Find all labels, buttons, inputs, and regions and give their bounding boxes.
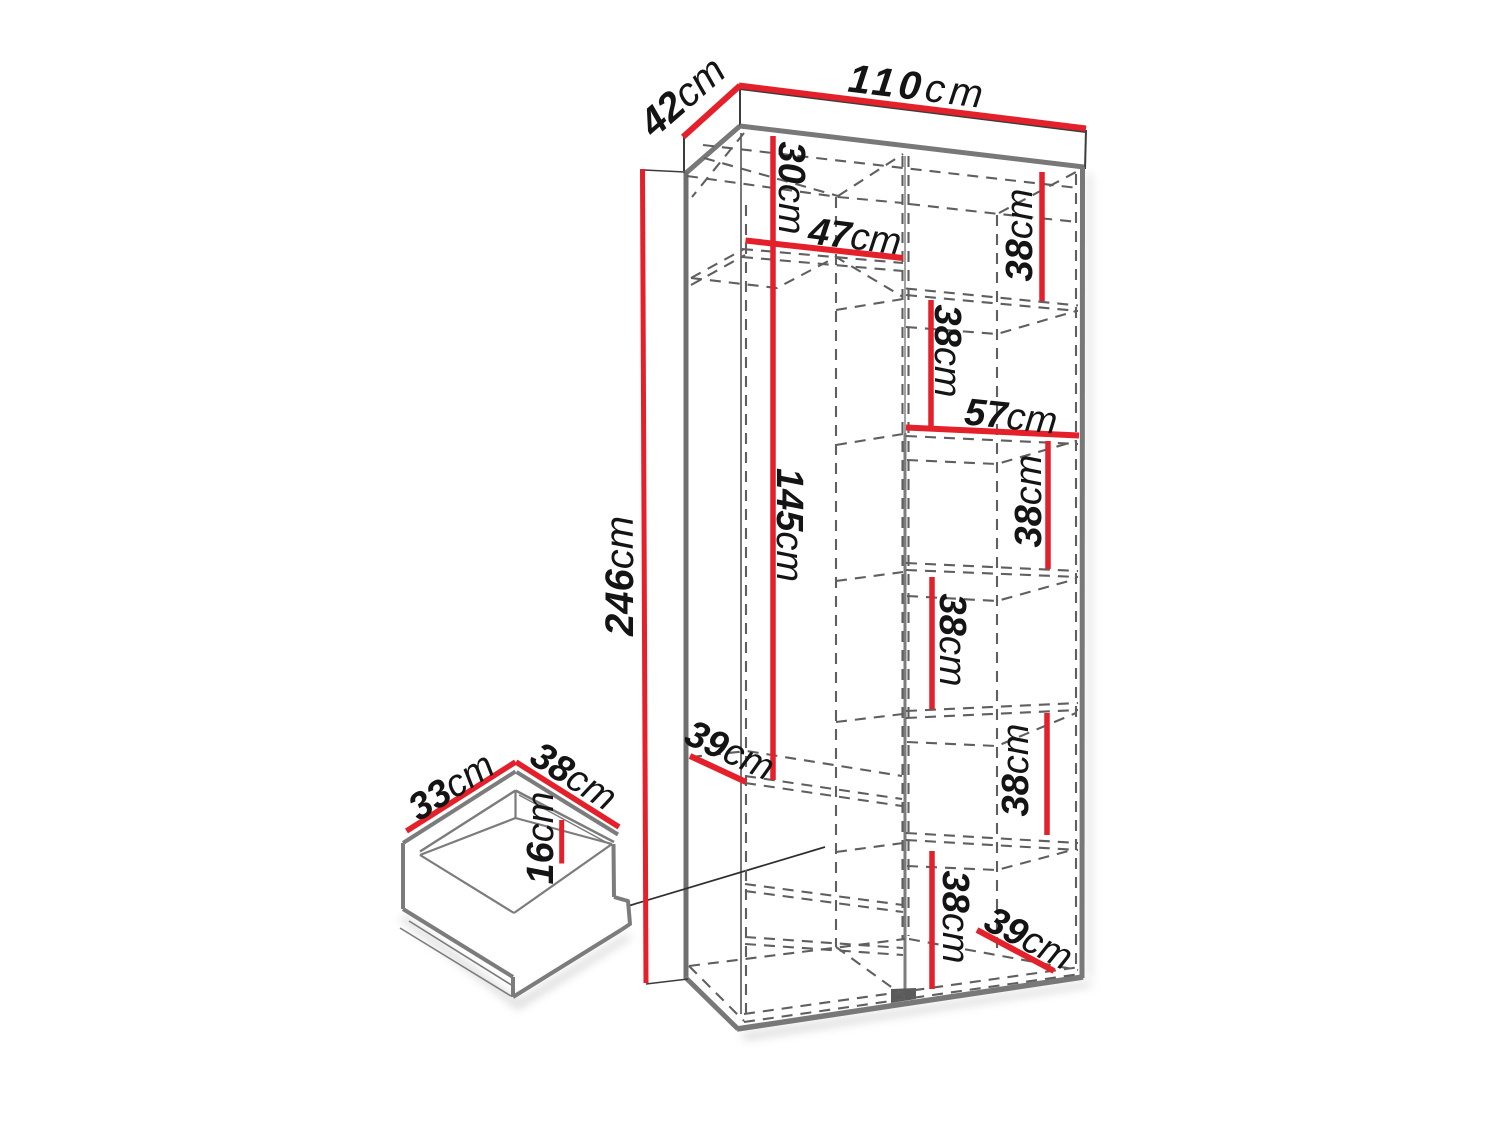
svg-text:38cm: 38cm xyxy=(1008,455,1050,548)
svg-text:110cm: 110cm xyxy=(846,57,990,118)
svg-text:33cm: 33cm xyxy=(401,744,502,829)
svg-text:57cm: 57cm xyxy=(962,391,1059,442)
svg-text:38cm: 38cm xyxy=(999,189,1041,282)
svg-text:42cm: 42cm xyxy=(631,48,734,146)
svg-text:38cm: 38cm xyxy=(995,724,1037,817)
svg-text:145cm: 145cm xyxy=(768,468,810,582)
svg-text:38cm: 38cm xyxy=(934,871,976,964)
svg-text:16cm: 16cm xyxy=(520,792,562,885)
svg-text:246cm: 246cm xyxy=(598,516,642,637)
svg-text:39cm: 39cm xyxy=(978,899,1080,979)
svg-text:30cm: 30cm xyxy=(770,142,812,235)
svg-text:38cm: 38cm xyxy=(931,594,973,687)
svg-text:38cm: 38cm xyxy=(926,305,968,398)
svg-text:39cm: 39cm xyxy=(679,713,781,790)
